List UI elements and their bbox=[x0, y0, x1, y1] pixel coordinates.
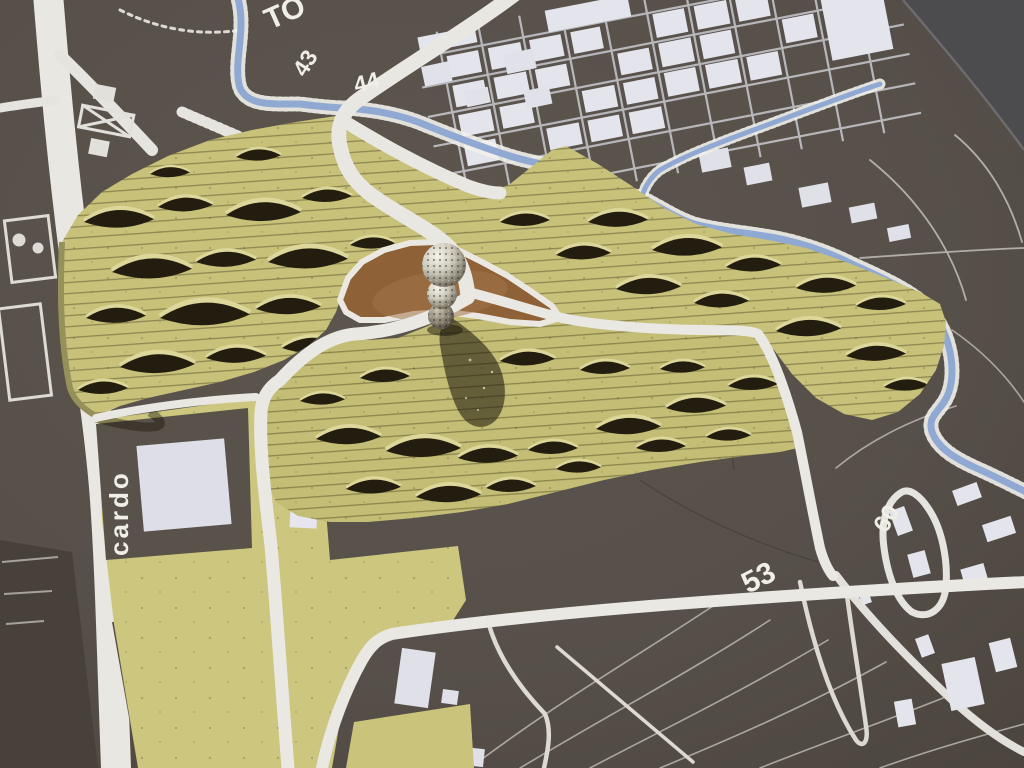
model-photo: TO 43 44 53 60 cardo bbox=[0, 0, 1024, 768]
model-photo-canvas: TO 43 44 53 60 cardo bbox=[0, 0, 1024, 768]
